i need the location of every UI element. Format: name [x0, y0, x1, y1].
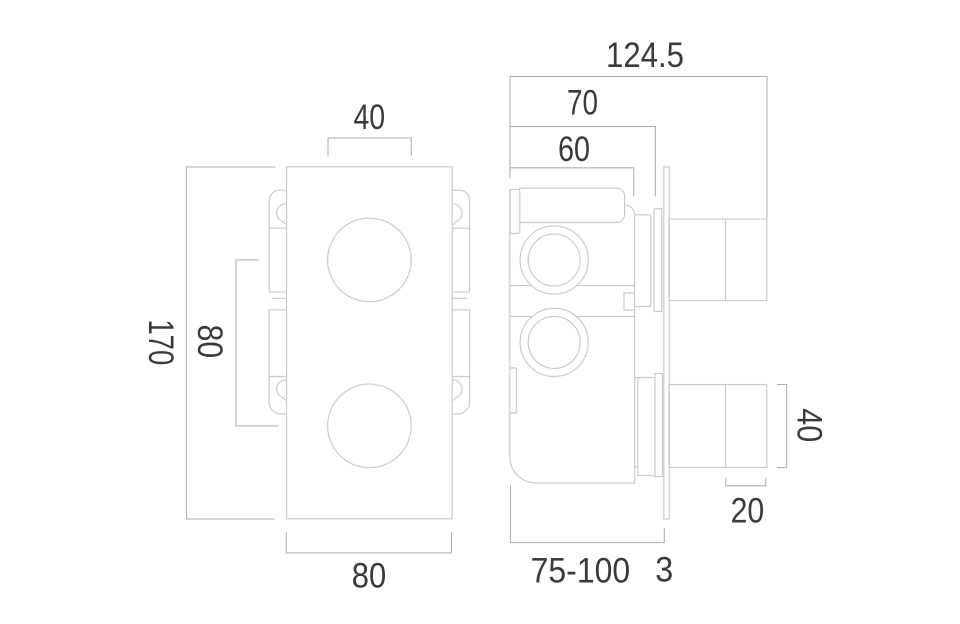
- svg-text:70: 70: [567, 82, 598, 122]
- svg-text:40: 40: [790, 408, 830, 442]
- svg-text:20: 20: [731, 491, 765, 531]
- svg-text:80: 80: [190, 325, 230, 359]
- svg-text:60: 60: [558, 129, 590, 169]
- svg-text:80: 80: [352, 556, 386, 596]
- svg-text:124.5: 124.5: [606, 35, 684, 75]
- svg-text:75-100: 75-100: [531, 551, 631, 591]
- svg-text:170: 170: [141, 319, 181, 365]
- svg-text:3: 3: [655, 550, 673, 590]
- svg-text:40: 40: [353, 97, 385, 137]
